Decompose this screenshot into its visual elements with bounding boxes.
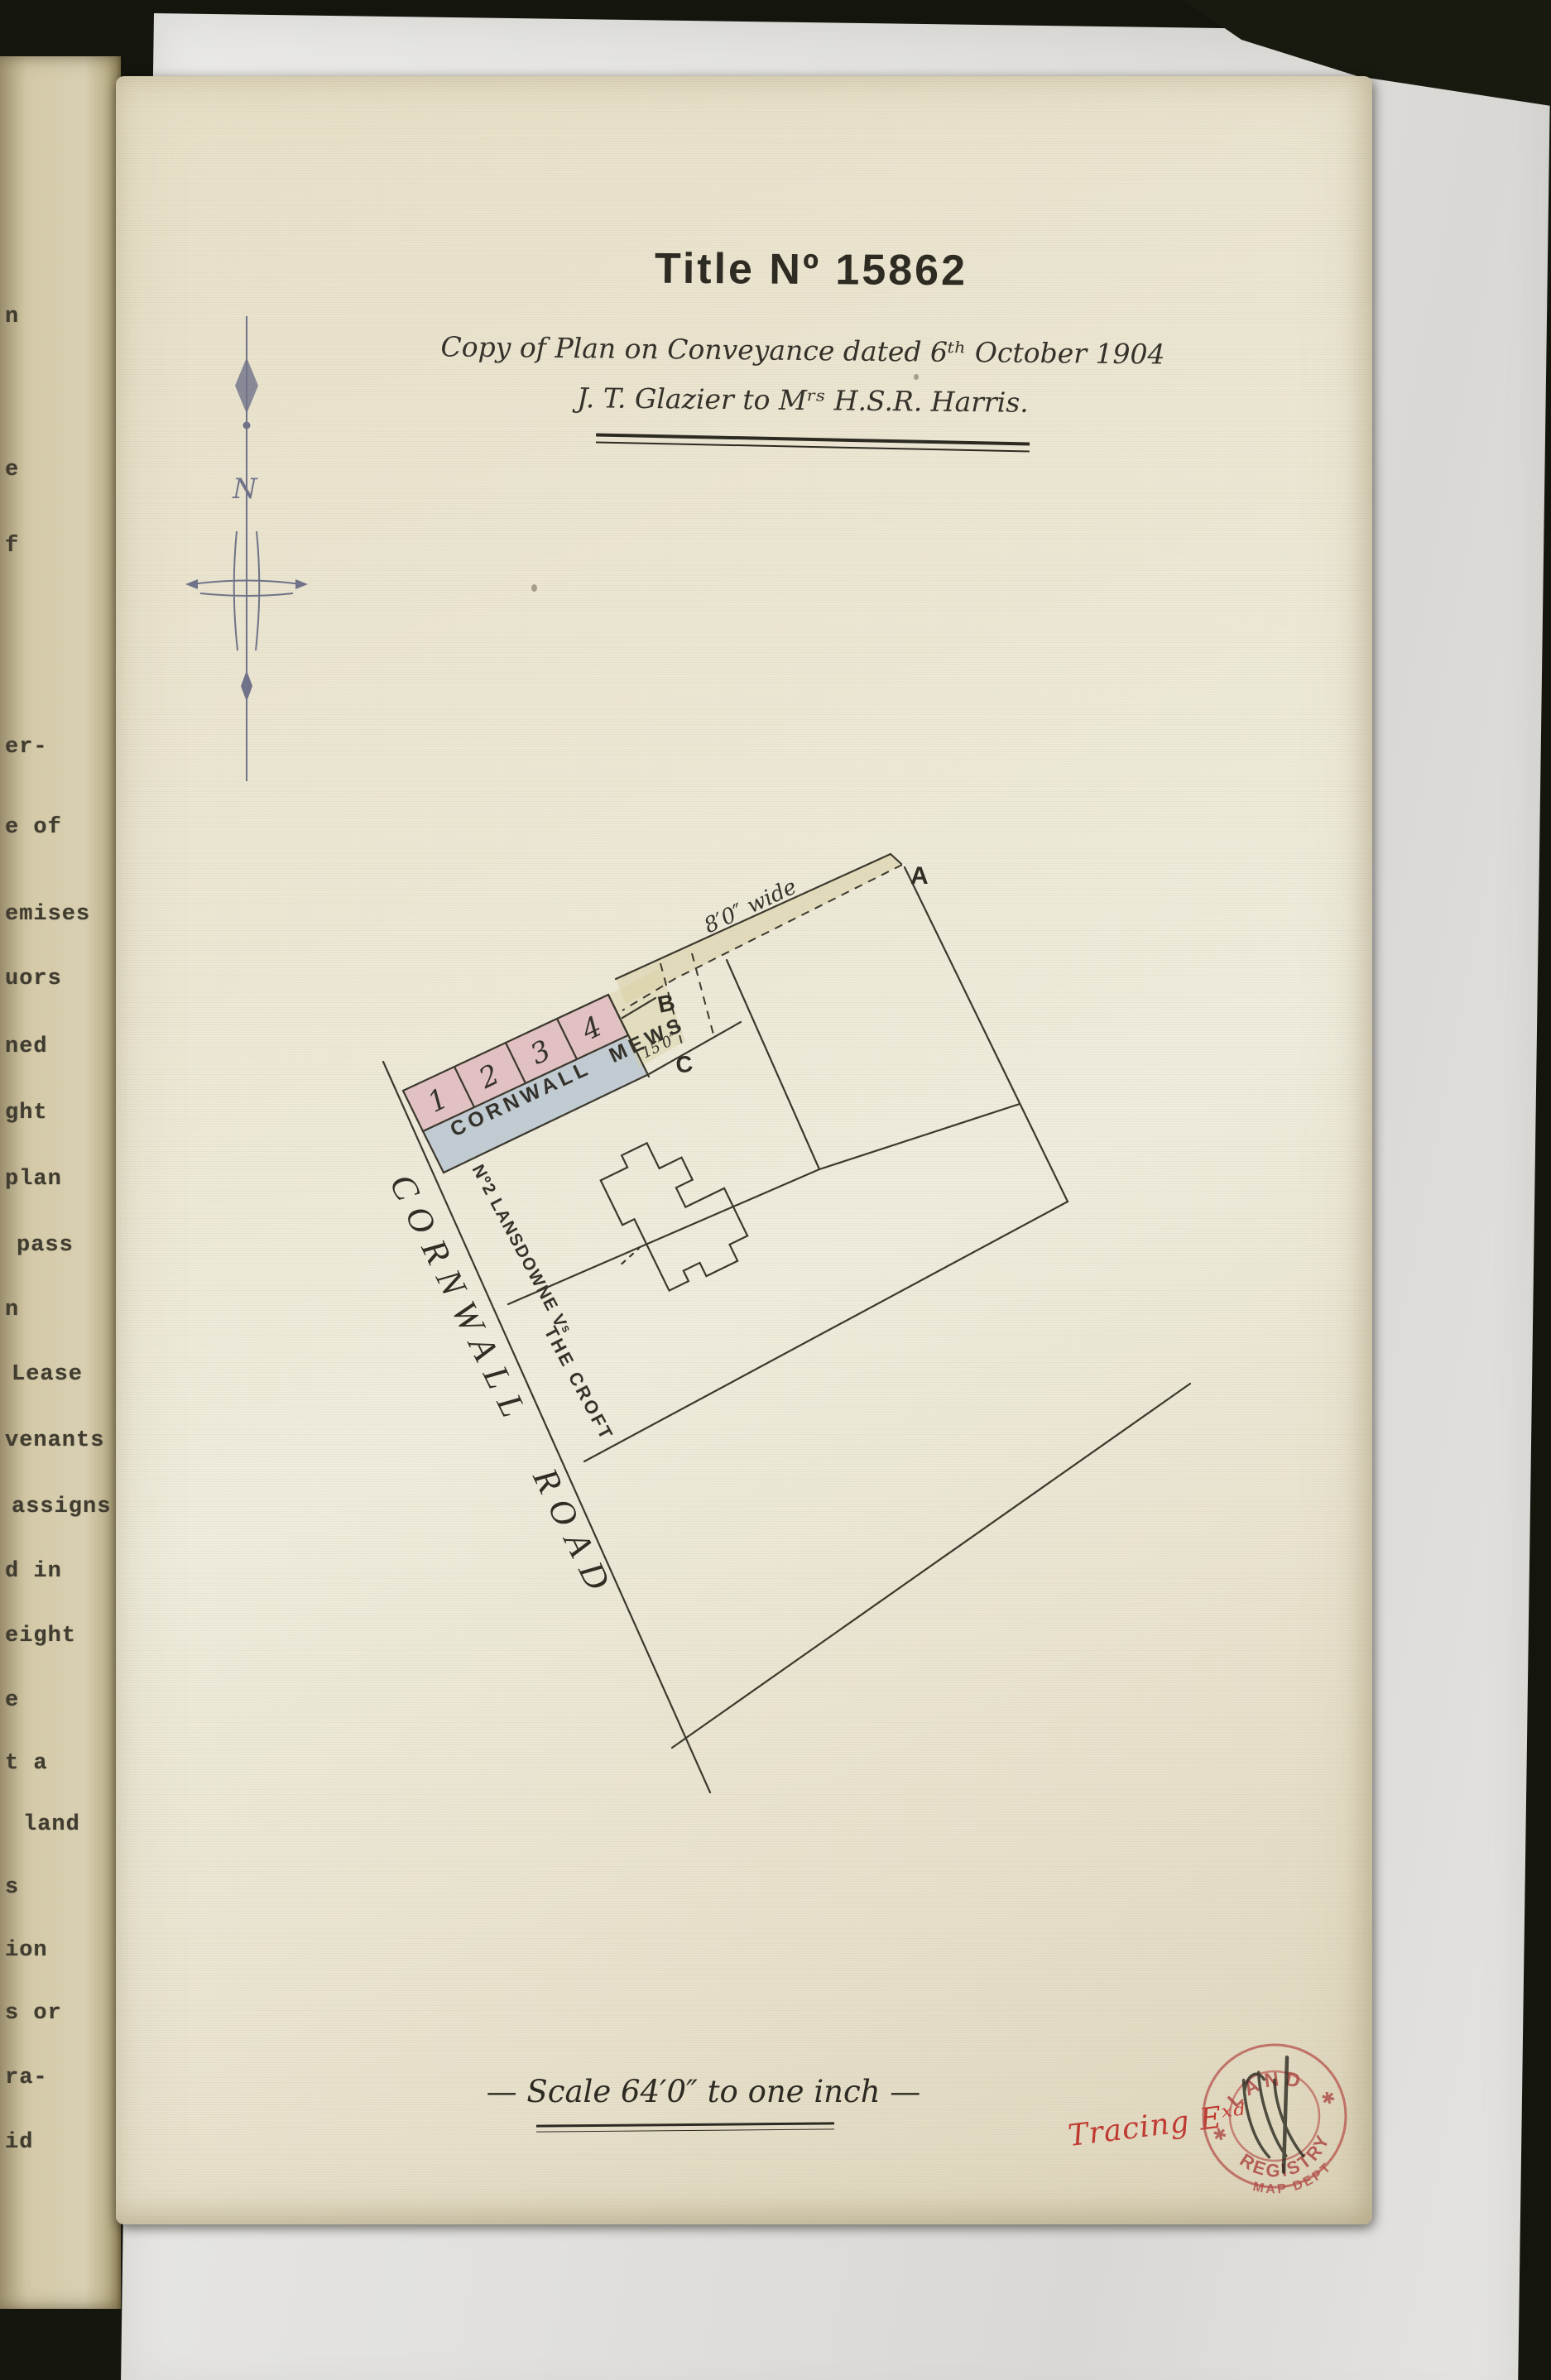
scale-note: — Scale 64′0″ to one inch —: [472, 2074, 935, 2109]
subtitle-line2: J. T. Glazier to Mʳˢ H.S.R. Harris.: [497, 381, 1109, 420]
typed-fragment: land: [23, 1812, 80, 1837]
typed-fragment: n: [5, 305, 19, 329]
typed-fragment: s: [5, 1875, 19, 1900]
scanned-conveyance-plan-page: n e f er- e of emises uors ned ght plan …: [0, 0, 1551, 2380]
typed-fragment: eight: [5, 1624, 76, 1648]
typed-fragment: pass: [17, 1233, 74, 1258]
typed-fragment: venants: [5, 1428, 104, 1453]
typed-fragment: id: [5, 2130, 33, 2155]
typed-fragment: d in: [5, 1559, 62, 1584]
typed-fragment: ned: [5, 1034, 48, 1059]
typed-fragment: er-: [5, 735, 48, 760]
typed-fragment: s or: [5, 2001, 62, 2026]
typed-fragment: ght: [5, 1101, 48, 1125]
typed-fragment: ra-: [5, 2066, 48, 2090]
typed-fragment: ion: [5, 1938, 48, 1963]
ink-speck: [531, 584, 537, 592]
typed-fragment: emises: [5, 902, 90, 927]
typed-fragment: assigns: [12, 1495, 111, 1519]
typed-fragment: e: [5, 1688, 19, 1713]
typed-fragment: Lease: [12, 1362, 83, 1387]
ink-speck: [914, 374, 919, 380]
typed-fragment: t a: [5, 1751, 48, 1776]
typed-fragment: e of: [5, 815, 62, 840]
typed-fragment: e: [5, 458, 19, 482]
typed-fragment: f: [5, 534, 19, 559]
typed-fragment: plan: [5, 1167, 62, 1192]
page-title: Title Nº 15862: [546, 243, 1076, 296]
typed-fragment: n: [5, 1298, 19, 1322]
previous-typed-page: n e f er- e of emises uors ned ght plan …: [0, 56, 121, 2309]
typed-fragment: uors: [5, 967, 62, 991]
